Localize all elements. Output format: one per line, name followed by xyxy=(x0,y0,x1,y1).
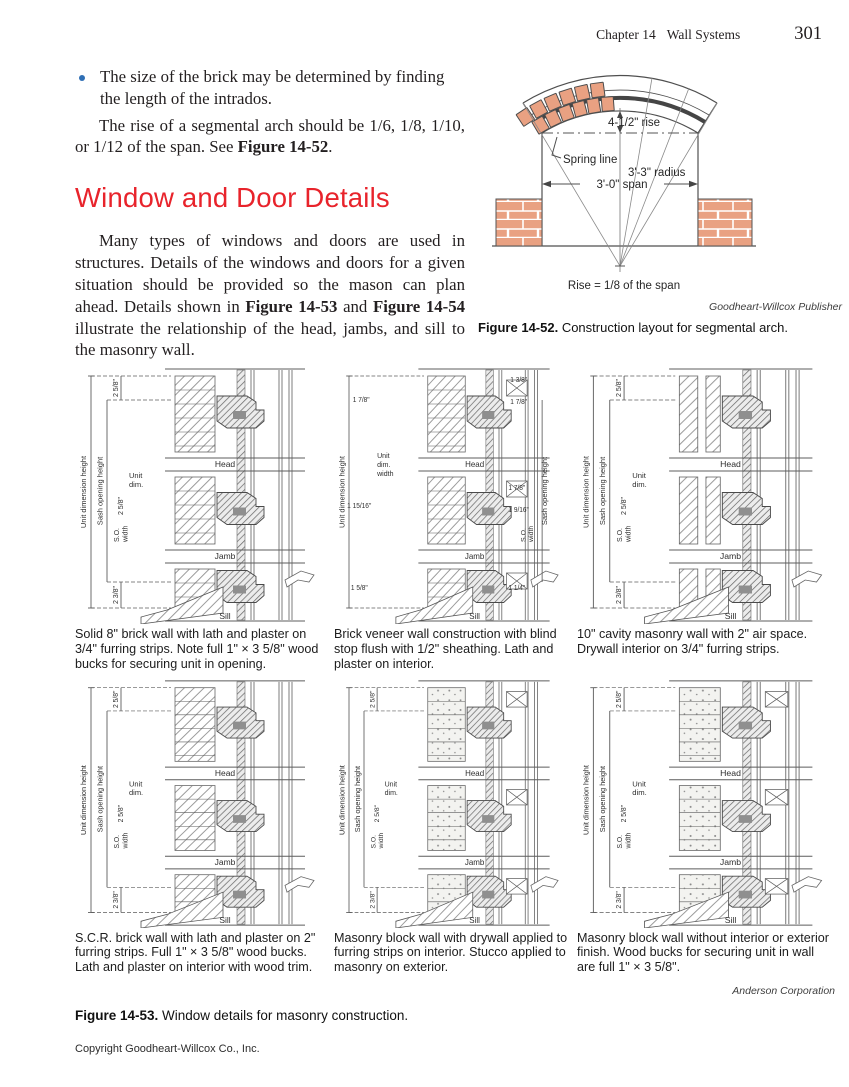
panel-caption-3: 10" cavity masonry wall with 2" air spac… xyxy=(577,627,839,657)
dim-mid: 2 5/8" xyxy=(118,496,125,515)
section-heading: Window and Door Details xyxy=(75,182,465,214)
spring-line-label: Spring line xyxy=(563,154,617,166)
sash-opening-height-label: Sash opening height xyxy=(598,456,607,525)
unit-dim-label: Unitdim. xyxy=(632,471,647,489)
bullet-text: The size of the brick may be determined … xyxy=(100,66,465,110)
dim-value: 1 1/4" xyxy=(508,585,525,592)
bullet-icon xyxy=(79,75,85,81)
paragraph-text: . xyxy=(328,137,332,156)
window-detail-drawing-4: HeadJambSillUnit dimension heightSash op… xyxy=(75,678,331,928)
window-detail-panel-2: HeadJambSillUnit dimension heightSash op… xyxy=(334,366,574,672)
window-detail-panel-1: HeadJambSillUnit dimension heightSash op… xyxy=(75,366,331,672)
head-label: Head xyxy=(465,768,484,777)
panel-caption-6: Masonry block wall without interior or e… xyxy=(577,931,839,976)
sill-label: Sill xyxy=(725,611,737,621)
arch-brick xyxy=(574,84,590,101)
jamb-label: Jamb xyxy=(215,857,236,867)
figure-reference: Figure 14-52 xyxy=(238,137,329,156)
sill-label: Sill xyxy=(219,611,230,621)
dim-top: 2 5/8" xyxy=(369,690,376,708)
so-width-label: S.O.width xyxy=(370,832,385,849)
dim-value: 1 7/8" xyxy=(508,485,525,492)
unit-dim-width-label: Unitdim.width xyxy=(376,451,393,478)
head-label: Head xyxy=(465,460,484,469)
head-label: Head xyxy=(215,459,236,469)
window-detail-drawing-3: HeadJambSillUnit dimension heightSash op… xyxy=(577,366,839,624)
so-width-label: S.O.width xyxy=(520,525,535,543)
unit-dim-label: Unitdim. xyxy=(385,780,398,797)
paragraph-text: and xyxy=(337,297,373,316)
sill-label: Sill xyxy=(469,916,480,925)
sash-opening-height-label: Sash opening height xyxy=(354,766,362,832)
sill-label: Sill xyxy=(219,915,230,925)
caption-text: Construction layout for segmental arch. xyxy=(558,320,788,335)
page-number: 301 xyxy=(794,24,822,45)
unit-dimension-height-label: Unit dimension height xyxy=(338,456,347,528)
figure-credit: Goodheart-Willcox Publisher xyxy=(478,301,842,313)
figure-14-52: 4-1/2" rise Spring line 3'-3" radius 3'-… xyxy=(478,58,842,336)
jamb-label: Jamb xyxy=(465,857,485,866)
unit-dimension-height-label: Unit dimension height xyxy=(581,455,590,528)
panel-caption-5: Masonry block wall with drywall applied … xyxy=(334,931,574,976)
dim-top: 2 5/8" xyxy=(113,690,120,708)
arch-brick xyxy=(601,97,614,112)
arch-bricks xyxy=(516,82,614,134)
chapter-label: Chapter 14 xyxy=(596,27,656,43)
figure-credit: Anderson Corporation xyxy=(577,985,839,997)
figure-14-52-caption: Figure 14-52. Construction layout for se… xyxy=(478,320,842,336)
dim-top: 2 5/8" xyxy=(113,378,120,397)
window-detail-drawing-5: HeadJambSillUnit dimension heightSash op… xyxy=(334,678,574,928)
window-detail-panel-3: HeadJambSillUnit dimension heightSash op… xyxy=(577,366,839,672)
segmental-arch-diagram: 4-1/2" rise Spring line 3'-3" radius 3'-… xyxy=(478,58,842,298)
sash-opening-height-label: Sash opening height xyxy=(96,456,105,525)
arch-brick xyxy=(587,98,601,114)
sash-opening-height-label: Sash opening height xyxy=(598,765,607,832)
span-label: 3'-0" span xyxy=(596,179,647,191)
bullet-item: The size of the brick may be determined … xyxy=(75,66,465,110)
unit-dimension-height-label: Unit dimension height xyxy=(79,455,88,528)
window-detail-panel-6: HeadJambSillUnit dimension heightSash op… xyxy=(577,678,839,998)
dim-bottom: 2 3/8" xyxy=(615,586,623,605)
figure-number: Figure 14-53. xyxy=(75,1008,158,1023)
dim-value: 1 7/8" xyxy=(510,399,527,406)
radius-label: 3'-3" radius xyxy=(628,167,686,179)
jamb-label: Jamb xyxy=(720,857,742,867)
unit-dim-label: Unitdim. xyxy=(129,471,143,489)
panel-caption-1: Solid 8" brick wall with lath and plaste… xyxy=(75,627,331,672)
window-detail-drawing-1: HeadJambSillUnit dimension heightSash op… xyxy=(75,366,331,624)
sash-opening-height-label: Sash opening height xyxy=(540,457,549,525)
window-detail-drawing-6: HeadJambSillUnit dimension heightSash op… xyxy=(577,678,839,928)
caption-text: Window details for masonry construction. xyxy=(158,1008,408,1023)
dim-mid: 2 5/8" xyxy=(621,804,628,822)
unit-dim-label: Unitdim. xyxy=(632,779,647,796)
window-detail-panel-4: HeadJambSillUnit dimension heightSash op… xyxy=(75,678,331,998)
figure-14-53: HeadJambSillUnit dimension heightSash op… xyxy=(75,366,845,997)
brick-wall-right xyxy=(698,199,752,246)
detail-grid: HeadJambSillUnit dimension heightSash op… xyxy=(75,366,845,997)
dim-mid: 2 5/8" xyxy=(374,804,381,822)
unit-dimension-height-label: Unit dimension height xyxy=(338,765,346,835)
so-width-label: S.O.width xyxy=(114,832,130,849)
brick-wall-left xyxy=(496,199,542,246)
sash-opening-height-label: Sash opening height xyxy=(95,766,104,832)
sill-label: Sill xyxy=(469,612,480,621)
window-detail-drawing-2: HeadJambSillUnit dimension heightSash op… xyxy=(334,366,574,624)
rise-label: 4-1/2" rise xyxy=(608,117,660,129)
figure-reference: Figure 14-53 xyxy=(245,297,337,316)
dim-value: 1 7/8" xyxy=(353,397,370,404)
paragraph-text: illustrate the relationship of the head,… xyxy=(75,319,465,360)
dim-bottom: 2 3/8" xyxy=(113,890,120,908)
arch-brick xyxy=(590,82,605,98)
dim-value: 1 15/16" xyxy=(347,503,372,510)
dim-bottom: 2 3/8" xyxy=(113,585,120,604)
rise-note-label: Rise = 1/8 of the span xyxy=(568,280,680,292)
sill-label: Sill xyxy=(725,915,737,925)
jamb-label: Jamb xyxy=(720,551,741,561)
dim-value: 1 5/8" xyxy=(351,585,368,592)
unit-dim-label: Unitdim. xyxy=(129,779,143,797)
paragraph-window-door: Many types of windows and doors are used… xyxy=(75,230,465,361)
unit-dimension-height-label: Unit dimension height xyxy=(79,765,88,835)
head-label: Head xyxy=(720,768,741,778)
section-label: Wall Systems xyxy=(667,27,741,43)
textbook-page: Chapter 14 Wall Systems 301 The size of … xyxy=(0,0,849,1087)
jamb-label: Jamb xyxy=(215,551,236,561)
window-detail-panel-5: HeadJambSillUnit dimension heightSash op… xyxy=(334,678,574,998)
dim-value: 1 3/8" xyxy=(510,377,527,384)
panel-caption-4: S.C.R. brick wall with lath and plaster … xyxy=(75,931,331,976)
dim-top: 2 5/8" xyxy=(615,379,623,398)
head-label: Head xyxy=(215,768,236,778)
dim-value: 1 9/16" xyxy=(508,507,529,514)
dim-bottom: 2 3/8" xyxy=(616,890,623,908)
so-width-label: S.O.width xyxy=(616,526,633,543)
head-label: Head xyxy=(720,459,741,469)
figure-reference: Figure 14-54 xyxy=(373,297,465,316)
paragraph-arch-rise: The rise of a segmental arch should be 1… xyxy=(75,115,465,159)
dim-top: 2 5/8" xyxy=(616,690,623,708)
unit-dimension-height-label: Unit dimension height xyxy=(581,764,590,835)
dim-mid: 2 5/8" xyxy=(118,804,125,822)
figure-number: Figure 14-52. xyxy=(478,320,558,335)
jamb-label: Jamb xyxy=(465,552,485,561)
panel-caption-2: Brick veneer wall construction with blin… xyxy=(334,627,574,672)
dim-bottom: 2 3/8" xyxy=(369,890,376,908)
copyright-line: Copyright Goodheart-Willcox Co., Inc. xyxy=(75,1043,260,1055)
so-width-label: S.O.width xyxy=(617,832,633,849)
running-head: Chapter 14 Wall Systems 301 xyxy=(596,24,822,45)
so-width-label: S.O.width xyxy=(114,526,130,543)
figure-14-53-caption: Figure 14-53. Window details for masonry… xyxy=(75,1008,408,1023)
text-column: The size of the brick may be determined … xyxy=(75,66,465,378)
dim-mid: 2 5/8" xyxy=(620,497,628,516)
